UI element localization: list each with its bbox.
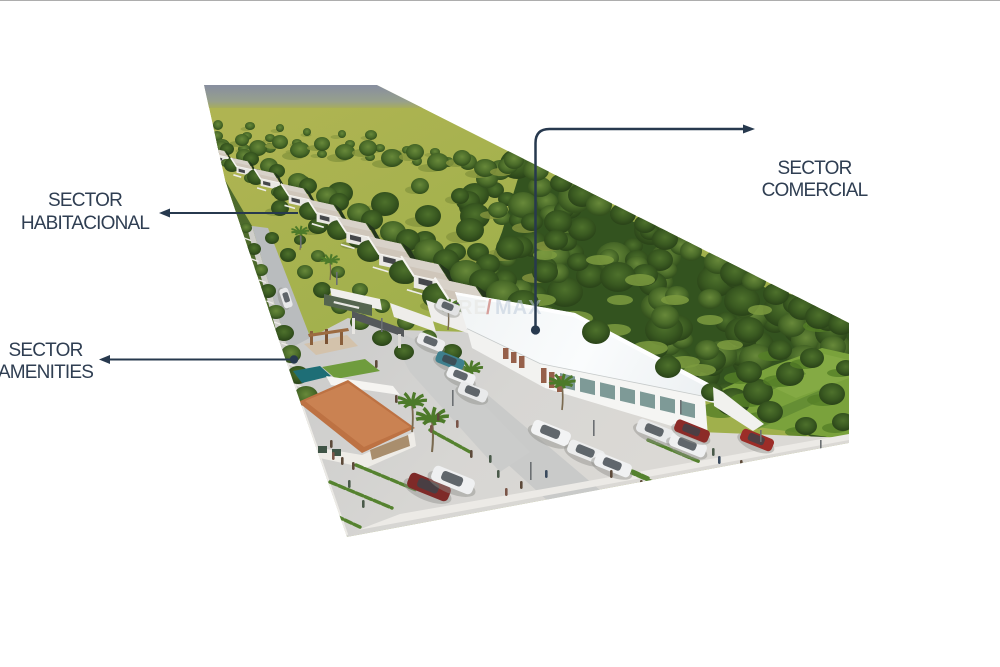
svg-text:/: / xyxy=(486,297,493,319)
svg-text:RE: RE xyxy=(458,297,488,319)
